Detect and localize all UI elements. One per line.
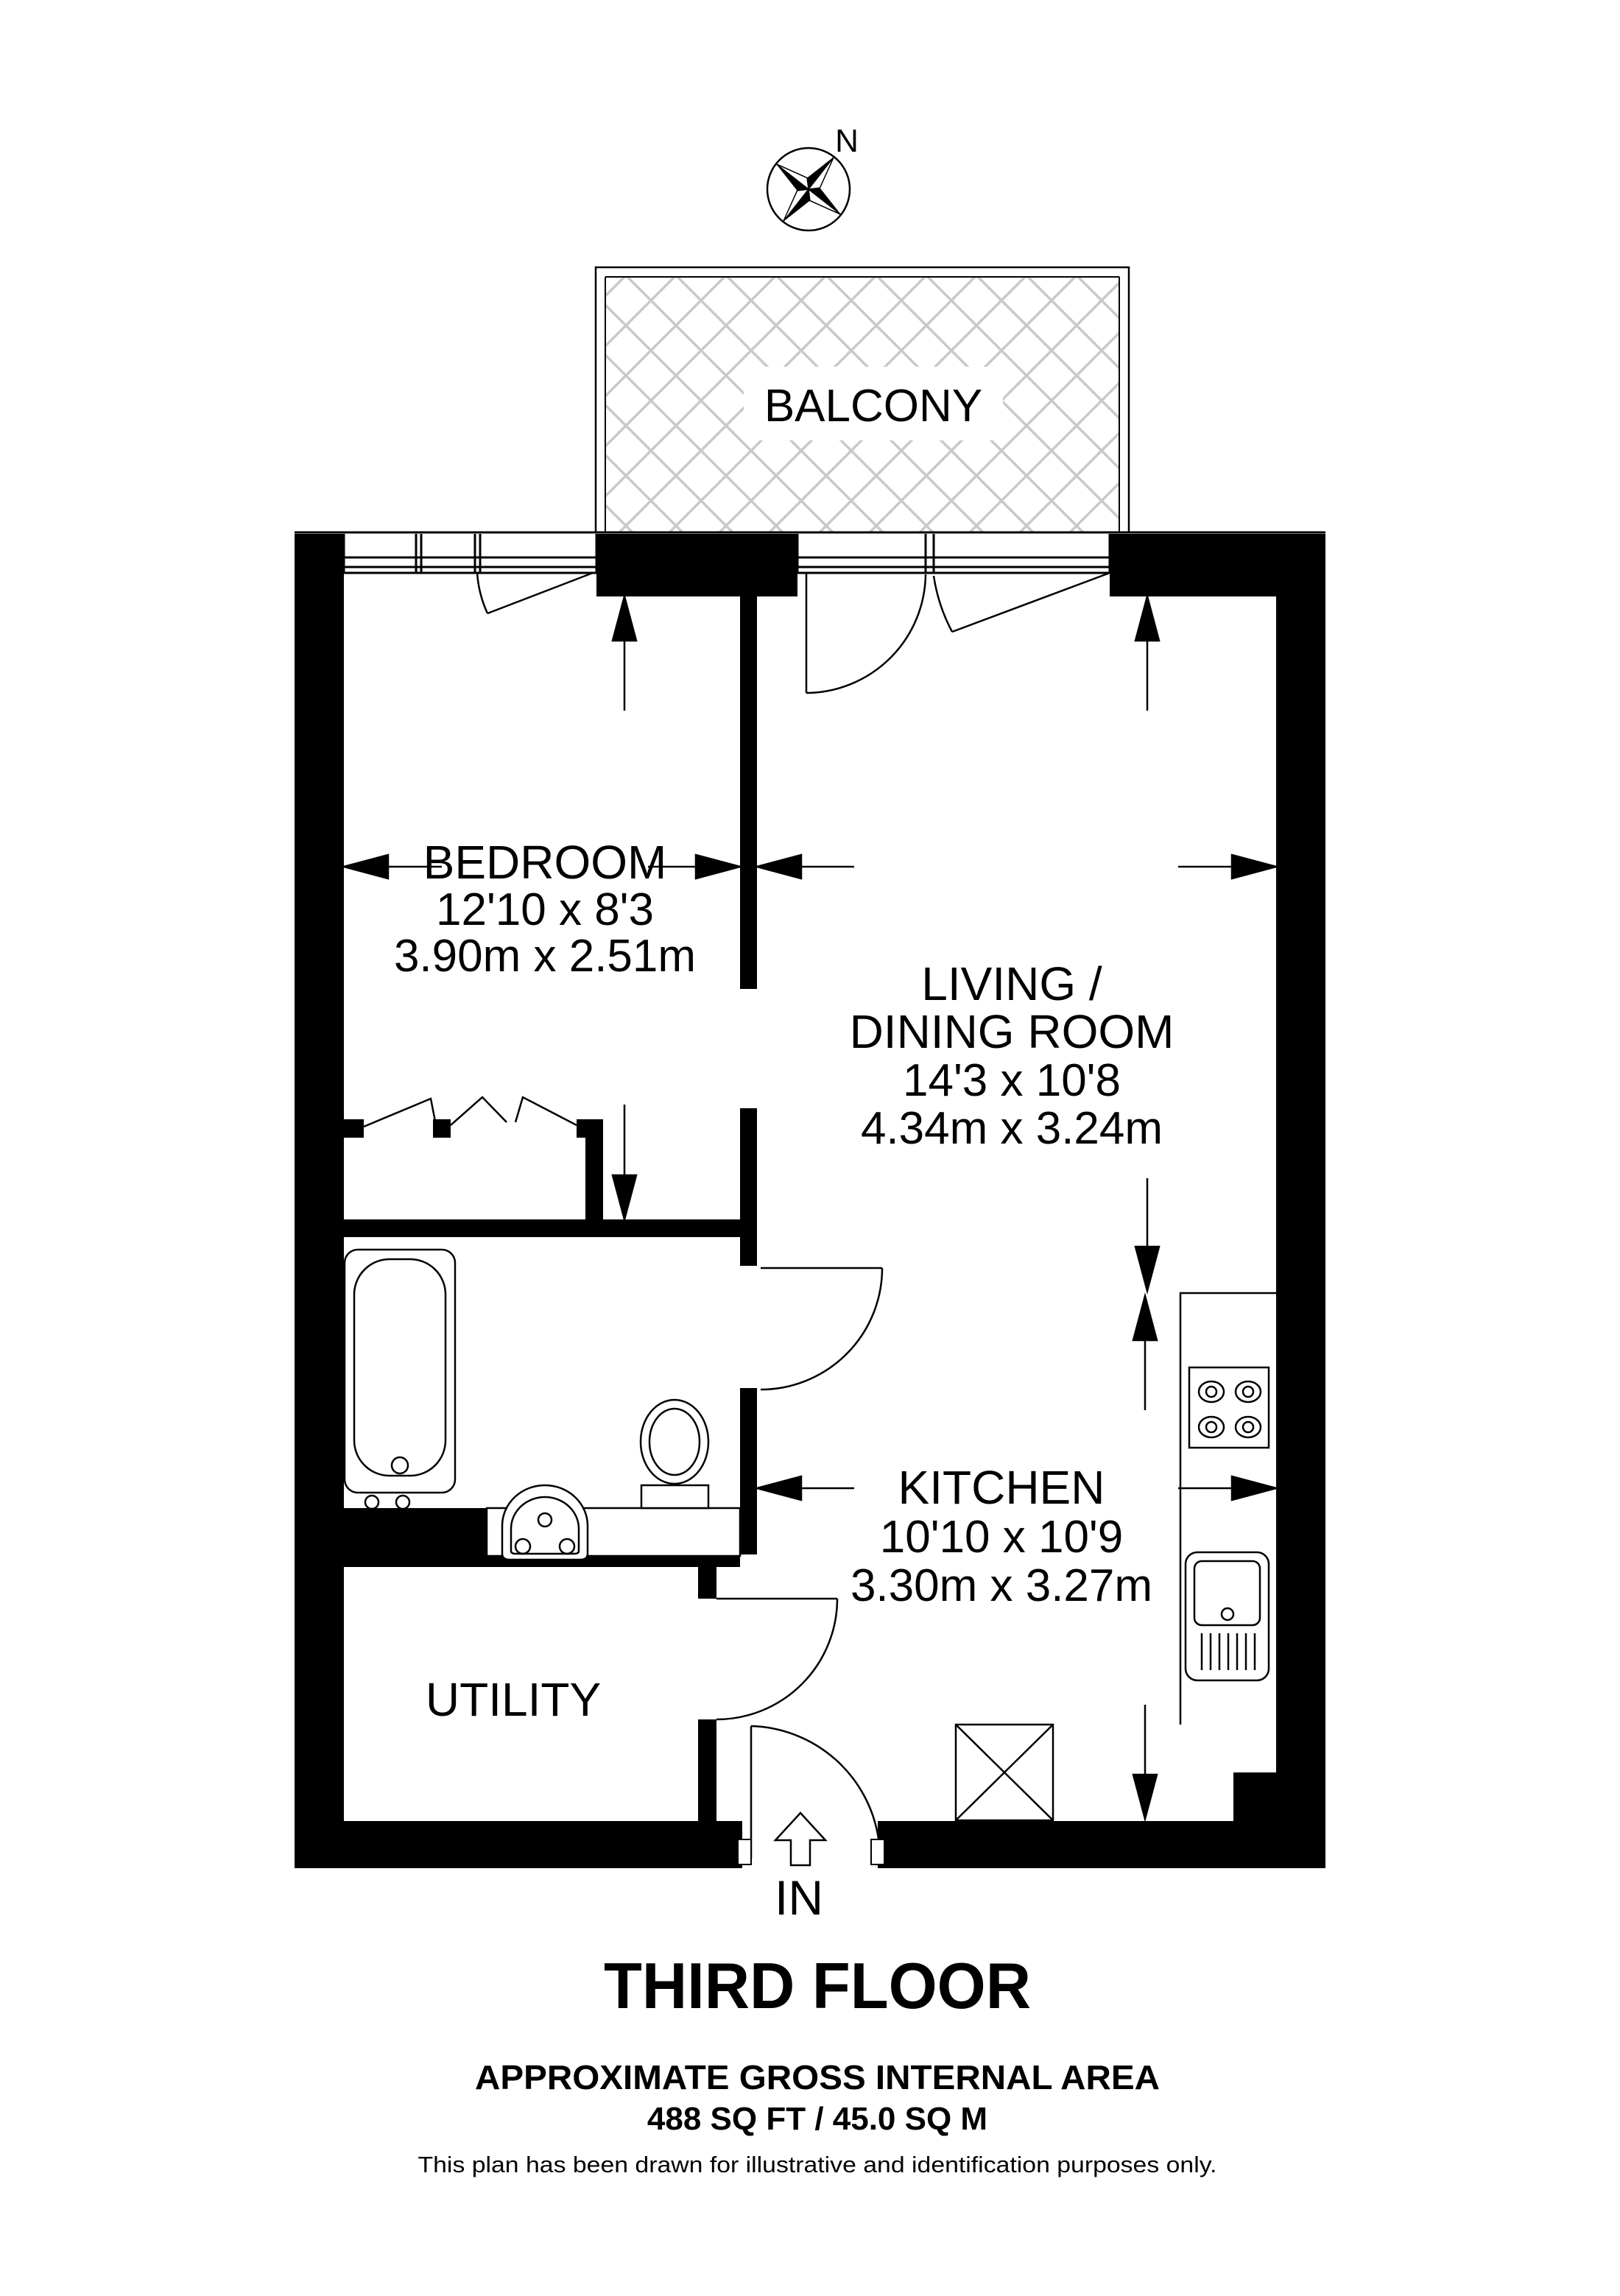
walls xyxy=(295,534,1325,1868)
wardrobe-bifold-doors xyxy=(364,1097,577,1127)
utility-label: UTILITY xyxy=(426,1673,601,1726)
wall-utility-stub-top xyxy=(698,1567,716,1599)
balcony-label: BALCONY xyxy=(764,381,982,432)
wall-top-right-corner xyxy=(1110,534,1325,596)
bedroom-size-metric: 3.90m x 2.51m xyxy=(394,931,696,982)
doors xyxy=(364,573,1110,1864)
bathroom-door xyxy=(761,1268,882,1390)
entrance-arrow-icon xyxy=(775,1813,825,1865)
footer: THIRD FLOOR APPROXIMATE GROSS INTERNAL A… xyxy=(418,1949,1217,2177)
balcony-door-left xyxy=(806,573,926,693)
floor-title: THIRD FLOOR xyxy=(604,1949,1031,2022)
area-value: 488 SQ FT / 45.0 SQ M xyxy=(647,2101,987,2137)
kitchen-sink xyxy=(1186,1552,1269,1680)
wash-basin xyxy=(502,1485,588,1560)
kitchen-label: KITCHEN xyxy=(898,1461,1105,1514)
wall-divider-lower xyxy=(740,1388,757,1554)
utility-door xyxy=(716,1599,837,1719)
balcony-door-right xyxy=(934,573,1110,632)
wall-left xyxy=(295,534,344,1868)
appliance-unit xyxy=(956,1725,1053,1820)
living-label-line2: DINING ROOM xyxy=(850,1005,1174,1058)
wall-divider-upper xyxy=(740,596,757,989)
bedroom-casement-window-swing xyxy=(477,573,593,613)
floor-plan-page: N BALCONY xyxy=(0,0,1620,2292)
wall-kitchen-nub xyxy=(1233,1772,1276,1821)
wall-wardrobe-stub xyxy=(585,1132,603,1219)
kitchen-size-metric: 3.30m x 3.27m xyxy=(850,1560,1152,1611)
kitchen-size-imperial: 10'10 x 10'9 xyxy=(880,1512,1124,1563)
floor-plan-drawing: N BALCONY xyxy=(0,0,1620,2292)
balcony: BALCONY xyxy=(596,267,1129,532)
dimension-arrows xyxy=(344,596,1276,1819)
compass-rose-icon: N xyxy=(750,123,866,247)
living-size-metric: 4.34m x 3.24m xyxy=(861,1103,1163,1154)
bedroom-label: BEDROOM xyxy=(423,836,667,889)
wall-utility-stub-bottom xyxy=(698,1719,716,1821)
wall-bottom-left xyxy=(295,1821,742,1868)
wall-bottom-right xyxy=(878,1821,1325,1868)
disclaimer: This plan has been drawn for illustrativ… xyxy=(418,2152,1217,2177)
compass-north-label: N xyxy=(835,123,859,159)
room-labels: BEDROOM 12'10 x 8'3 3.90m x 2.51m LIVING… xyxy=(394,836,1174,1925)
entrance-door xyxy=(738,1726,884,1864)
bedroom-size-imperial: 12'10 x 8'3 xyxy=(436,884,654,935)
living-size-imperial: 14'3 x 10'8 xyxy=(903,1055,1121,1106)
wall-bathroom-utility-block xyxy=(295,1508,487,1567)
entrance-label: IN xyxy=(775,1870,823,1925)
toilet xyxy=(641,1400,708,1508)
wall-divider-middle xyxy=(740,1108,757,1266)
wardrobe-post-left xyxy=(342,1119,364,1138)
wardrobe-post-right xyxy=(577,1119,603,1138)
area-heading: APPROXIMATE GROSS INTERNAL AREA xyxy=(475,2058,1160,2096)
wall-bathroom-top xyxy=(344,1219,757,1237)
living-label-line1: LIVING / xyxy=(921,957,1102,1010)
wall-top-pier xyxy=(596,534,797,596)
bathtub xyxy=(345,1250,455,1509)
wall-right xyxy=(1276,534,1325,1868)
hob xyxy=(1189,1367,1269,1448)
